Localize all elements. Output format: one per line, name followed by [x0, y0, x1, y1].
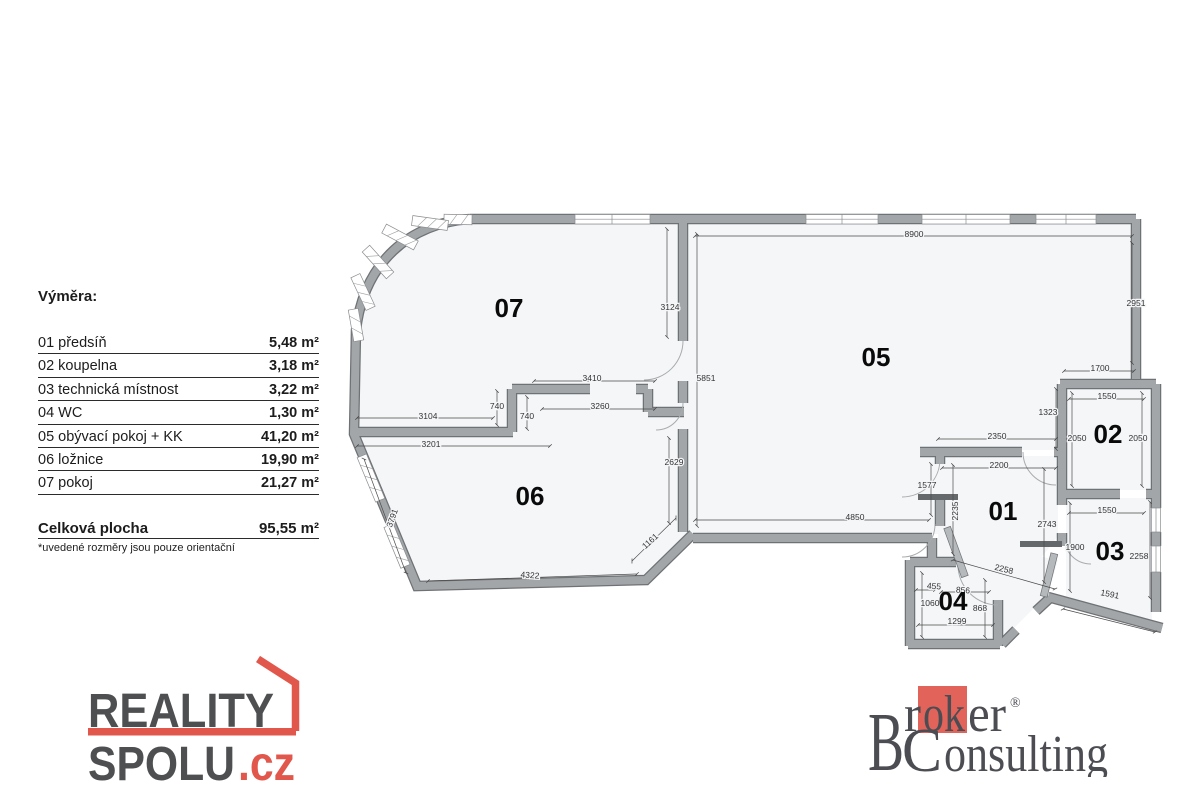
room-label: 05	[862, 342, 891, 372]
dimension-label: 2350	[988, 431, 1007, 441]
reality-logo-tld: .cz	[238, 738, 295, 791]
dimension-label: 3104	[419, 411, 438, 421]
reality-spolu-logo: REALITY SPOLU .cz	[88, 654, 302, 794]
dimension-label: 4850	[846, 512, 865, 522]
logo-underline	[88, 728, 296, 736]
dimension-label: 1550	[1098, 391, 1117, 401]
broker-logo-initial: B	[868, 696, 904, 777]
dimension-label: 8900	[905, 229, 924, 239]
dimension-label: 3260	[591, 401, 610, 411]
reality-logo-line2: SPOLU	[88, 738, 235, 791]
dimension-label: 5851	[697, 373, 716, 383]
dimension-label: 868	[973, 603, 987, 613]
dimension-label: 740	[490, 401, 504, 411]
room-label: 06	[516, 481, 545, 511]
consulting-logo-rest: onsulting	[944, 726, 1108, 777]
dimension-label: 3410	[583, 373, 602, 383]
dimension-label: 1577	[918, 480, 937, 490]
registered-trademark-icon: ®	[1010, 696, 1021, 711]
dimension-label: 1900	[1066, 542, 1085, 552]
dimension-label: 1550	[1098, 505, 1117, 515]
dimension-label: 1060	[921, 598, 940, 608]
dimension-label: 2200	[990, 460, 1009, 470]
room-label: 02	[1094, 419, 1123, 449]
consulting-logo-initial: C	[902, 717, 942, 777]
dimension-label: 1323	[1039, 407, 1058, 417]
dimension-label: 2743	[1038, 519, 1057, 529]
dimension-label: 2050	[1129, 433, 1148, 443]
dimension-label: 3201	[422, 439, 441, 449]
room-label: 01	[989, 496, 1018, 526]
dimension-label: 1299	[948, 616, 967, 626]
dimension-label: 1700	[1091, 363, 1110, 373]
dimension-label: 2258	[1130, 551, 1149, 561]
room-label: 03	[1096, 536, 1125, 566]
dimension-label: 2629	[665, 457, 684, 467]
dimension-label: 3124	[661, 302, 680, 312]
dimension-label: 2951	[1127, 298, 1146, 308]
dimension-label: 2235	[950, 501, 960, 520]
broker-consulting-logo: B r ok er ® C onsulting	[868, 682, 1188, 777]
room-label: 04	[939, 586, 968, 616]
floorplan-page: Výměra: 01 předsíň 5,48 m² 02 koupelna 3…	[0, 0, 1200, 800]
room-label: 07	[495, 293, 524, 323]
dimension-label: 2050	[1068, 433, 1087, 443]
dimension-label: 740	[520, 411, 534, 421]
dimension-label: 4322	[520, 569, 540, 580]
